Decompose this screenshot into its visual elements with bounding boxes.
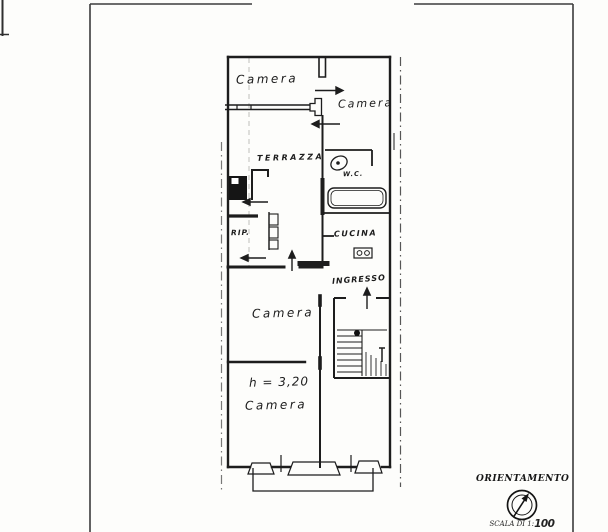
sheet-frame [90, 4, 573, 532]
scan-edge-artifact [0, 0, 9, 36]
balcony-threshold-icons [248, 461, 382, 475]
elevator-shaft-icon [229, 176, 247, 200]
room-label-camera-bottom: Camera [245, 398, 307, 412]
bathtub-icon [328, 188, 386, 208]
orientation-title: ORIENTAMENTO [476, 475, 568, 484]
room-label-camera-top-right: Camera [338, 97, 393, 109]
room-label-ripostiglio: RIP. [231, 229, 250, 237]
scale-prefix: SCALA DI 1: [490, 520, 535, 528]
room-label-cucina: CUCINA [334, 229, 377, 238]
elevator-jamb-wall [252, 170, 268, 200]
top-partition-stub [319, 57, 326, 77]
room-label-camera-middle: Camera [252, 306, 314, 320]
scale-note: SCALA DI 1:100 [472, 518, 572, 529]
window-wall [225, 99, 322, 116]
bottom-mullions [281, 455, 351, 472]
room-label-wc: W.C. [343, 171, 363, 178]
floorplan-drawing [0, 0, 608, 532]
room-label-camera-top-left: Camera [236, 72, 298, 86]
staircase-icon [334, 298, 390, 378]
scanned-floorplan-sheet: Camera Camera TERRAZZA W.C. RIP. CUCINA … [0, 0, 608, 532]
mid-divider-wall [228, 264, 327, 268]
stove-icon [354, 248, 372, 258]
scale-value: 100 [534, 518, 554, 530]
compass-icon [508, 491, 537, 520]
ceiling-height-note: h = 3,20 [249, 375, 309, 389]
